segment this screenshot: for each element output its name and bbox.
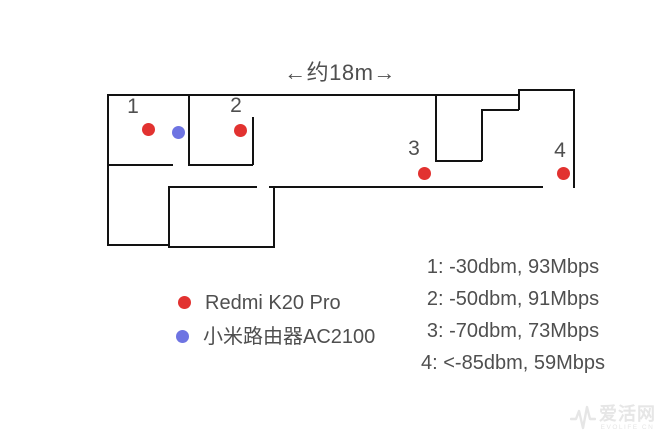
wall-corridor-bottom-right <box>269 186 543 188</box>
wall-room-divider <box>188 94 190 165</box>
legend-router-label: 小米路由器AC2100 <box>203 326 375 348</box>
blue-dot-icon <box>176 330 189 343</box>
red-dot-icon <box>178 296 191 309</box>
wall-room2-right <box>252 117 254 165</box>
wall-corridor-bottom-left <box>168 186 257 188</box>
wall-lower-room-right <box>273 186 275 248</box>
point-4-phone-dot <box>557 167 570 180</box>
point-4-label: 4 <box>549 139 571 163</box>
point-2-label: 2 <box>225 94 247 118</box>
dimension-label: ←约18m→ <box>270 60 410 86</box>
wall-notch-right <box>518 89 520 110</box>
point-3-phone-dot <box>418 167 431 180</box>
wall-top-right <box>518 89 574 91</box>
wall-notch-left <box>435 94 437 161</box>
signal-readings: 1: -30dbm, 93Mbps 2: -50dbm, 91Mbps 3: -… <box>418 251 608 379</box>
wall-notch-lower <box>435 160 482 162</box>
wall-bottom-left <box>107 244 170 246</box>
point-1-phone-dot <box>142 123 155 136</box>
pulse-icon <box>570 403 596 433</box>
reading-point-3: 3: -70dbm, 73Mbps <box>418 315 608 347</box>
wall-notch-upper <box>481 109 519 111</box>
wall-left <box>107 94 109 246</box>
watermark-brand: 爱活网 <box>599 405 656 424</box>
watermark: 爱活网 EVOLIFE CN <box>570 398 658 438</box>
wall-top-main <box>108 94 519 96</box>
watermark-text: 爱活网 EVOLIFE CN <box>599 405 656 432</box>
wall-below-room1 <box>107 164 173 166</box>
wall-right <box>573 89 575 188</box>
reading-point-4: 4: <-85dbm, 59Mbps <box>418 347 608 379</box>
router-dot <box>172 126 185 139</box>
legend-phone-label: Redmi K20 Pro <box>205 292 341 314</box>
reading-point-1: 1: -30dbm, 93Mbps <box>418 251 608 283</box>
reading-point-2: 2: -50dbm, 91Mbps <box>418 283 608 315</box>
wall-bottom-room <box>168 246 275 248</box>
point-1-label: 1 <box>122 95 144 119</box>
floorplan-wifi-test-diagram: ←约18m→ 1 2 3 4 Redmi K20 Pro <box>0 0 660 440</box>
wall-lower-room-left <box>168 186 170 247</box>
wall-notch-mid <box>481 109 483 161</box>
watermark-caption: EVOLIFE CN <box>601 424 655 432</box>
point-2-phone-dot <box>234 124 247 137</box>
point-3-label: 3 <box>403 137 425 161</box>
wall-below-room2 <box>188 164 253 166</box>
